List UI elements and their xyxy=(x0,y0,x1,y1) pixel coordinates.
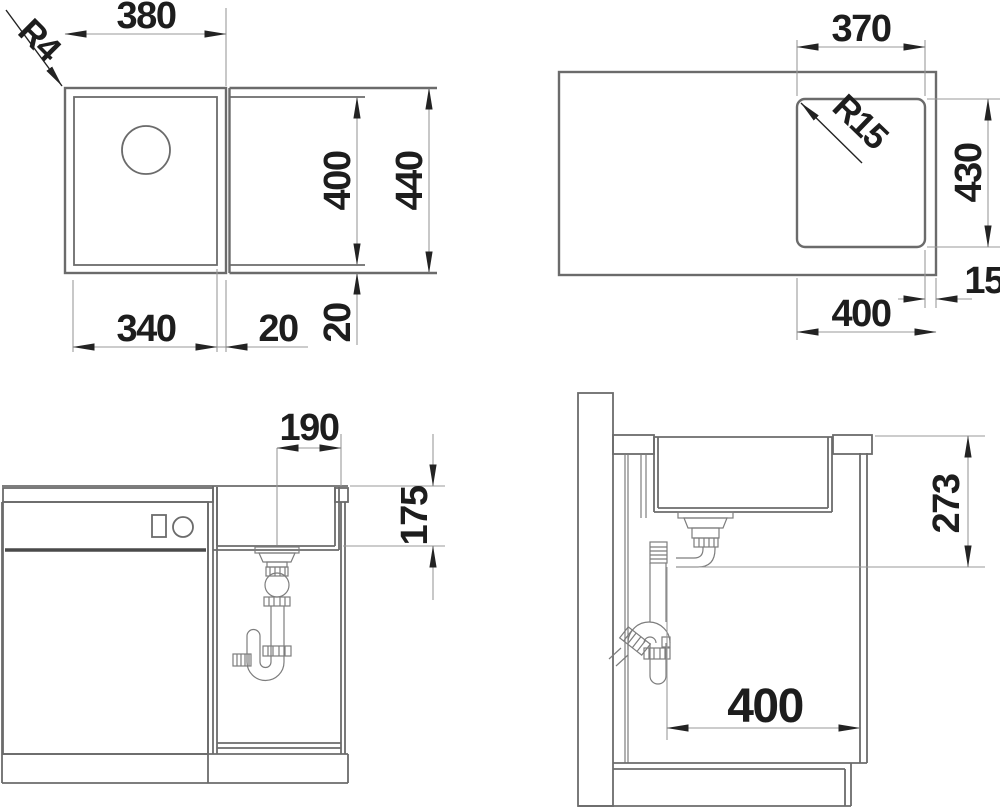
dim-bowl-width: 340 xyxy=(73,269,226,352)
dim-overall-depth: 440 xyxy=(389,88,431,273)
plinth-front xyxy=(2,502,348,783)
dim-bowl-depth: 400 xyxy=(317,97,359,265)
worktop-outline xyxy=(559,72,936,275)
dim-label-drain-offset: 190 xyxy=(280,407,339,449)
dim-overall-width: 380 xyxy=(65,0,226,86)
outlet-nut xyxy=(233,654,251,666)
dim-label-cutout-radius: R15 xyxy=(825,87,896,157)
front-section-view: 190 175 xyxy=(2,407,445,783)
dim-label-cutout-height: 430 xyxy=(948,143,990,202)
bowl-section-side xyxy=(654,437,833,512)
dim-label-cutout-offset: 400 xyxy=(832,293,891,335)
dim-label-bowl-width: 340 xyxy=(117,308,176,350)
appliance-control-panel xyxy=(152,515,166,537)
dim-label-corner-radius: R4 xyxy=(11,11,70,70)
worktop-edge-right xyxy=(335,488,348,502)
dim-label-outlet-offset: 400 xyxy=(727,680,803,733)
worktop-section-left xyxy=(613,435,654,454)
wall-section xyxy=(578,393,613,806)
pipe-coupling xyxy=(263,646,291,656)
dim-label-edge-gap: 15 xyxy=(964,260,1000,302)
dim-label-overall-depth: 440 xyxy=(389,151,431,210)
cabinet-back-panel xyxy=(625,453,646,763)
strainer-body xyxy=(259,553,295,562)
drain-hole xyxy=(122,126,170,174)
dim-outlet-offset: 400 xyxy=(667,567,860,740)
drain-trap-front xyxy=(233,547,299,681)
dim-drain-offset: 190 xyxy=(277,407,341,545)
dim-label-outlet-height: 273 xyxy=(926,474,968,533)
plan-view: 380 R4 400 440 340 20 xyxy=(6,0,437,352)
dim-bowl-depth-front: 175 xyxy=(343,434,445,600)
dim-label-rim-side: 20 xyxy=(258,308,298,350)
appliance-front xyxy=(3,502,208,754)
appliance-control-knob xyxy=(173,517,193,537)
worktop-edge-left xyxy=(3,488,213,502)
technical-drawing-page: 380 R4 400 440 340 20 xyxy=(0,0,1000,808)
wall-pipe-nut xyxy=(650,542,667,563)
bowl-section-front xyxy=(213,487,339,550)
drain-trap-side xyxy=(609,512,985,684)
dim-rim-back: 20 xyxy=(317,273,359,345)
dim-label-rim-back: 20 xyxy=(317,303,359,343)
leader-corner-radius: R4 xyxy=(6,10,69,86)
sink-cabinet-front xyxy=(2,486,348,783)
wall-outlet-nut xyxy=(620,627,651,655)
dim-rim-side: 20 xyxy=(217,308,308,350)
cabinet-side-and-plinth xyxy=(578,453,867,806)
dim-label-cutout-width: 370 xyxy=(832,8,891,50)
worktop-section-right xyxy=(833,435,872,454)
dim-edge-gap: 15 xyxy=(898,250,1000,308)
dim-label-overall-width: 380 xyxy=(117,0,176,37)
dim-cutout-offset: 400 xyxy=(797,278,936,340)
tailpiece-nut-side xyxy=(694,538,718,547)
dim-label-bowl-depth-front: 175 xyxy=(394,485,436,545)
sink-outer-outline xyxy=(65,88,226,273)
dim-outlet-height: 273 xyxy=(875,436,985,567)
union-nut xyxy=(264,597,290,606)
sink-dimension-drawing: 380 R4 400 440 340 20 xyxy=(0,0,1000,808)
sink-bowl-outline xyxy=(74,97,217,265)
cutout-view: 370 R15 430 15 400 xyxy=(559,8,1000,340)
outlet-elbow xyxy=(676,547,703,558)
dim-cutout-height: 430 xyxy=(927,99,1000,247)
side-section-view: 273 400 xyxy=(578,393,985,806)
tailpiece-nut xyxy=(266,567,288,576)
dim-cutout-width: 370 xyxy=(797,8,925,96)
dim-label-bowl-depth: 400 xyxy=(317,151,359,210)
